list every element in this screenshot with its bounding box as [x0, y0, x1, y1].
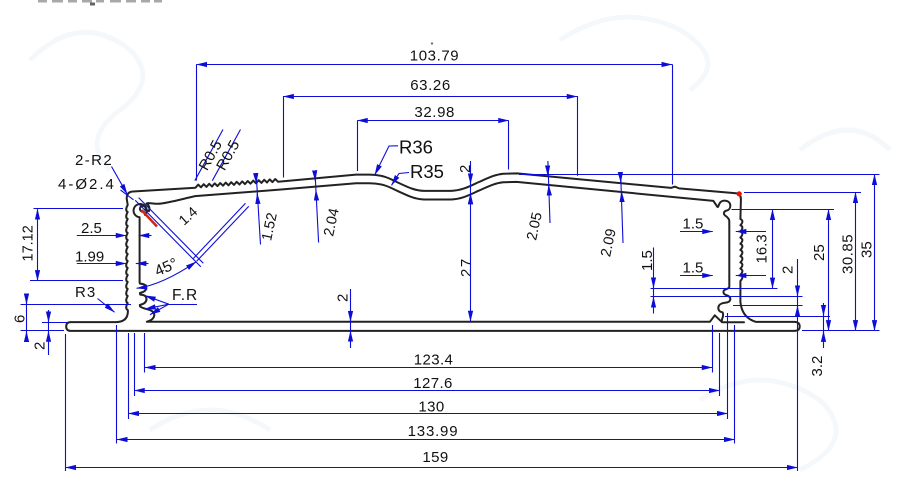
svg-text:R35: R35: [410, 161, 444, 182]
svg-text:32.98: 32.98: [414, 104, 455, 121]
svg-text:2-R2: 2-R2: [75, 152, 113, 169]
svg-text:2: 2: [457, 165, 474, 173]
svg-text:123.4: 123.4: [414, 352, 454, 369]
svg-text:35: 35: [859, 241, 876, 258]
svg-text:63.26: 63.26: [410, 77, 451, 94]
svg-text:4-Ø2.4: 4-Ø2.4: [58, 176, 116, 193]
svg-text:127.6: 127.6: [413, 375, 453, 392]
svg-text:1.5: 1.5: [683, 216, 704, 233]
svg-text:2: 2: [335, 294, 352, 302]
svg-text:130: 130: [418, 398, 444, 415]
svg-text:17.12: 17.12: [21, 225, 37, 261]
svg-text:3.2: 3.2: [809, 356, 826, 377]
svg-text:27: 27: [458, 257, 475, 277]
svg-text:30.85: 30.85: [840, 234, 857, 274]
svg-text:2: 2: [32, 342, 49, 350]
svg-text:F.R: F.R: [172, 287, 198, 304]
svg-text:25: 25: [811, 244, 828, 261]
svg-text:2.5: 2.5: [81, 220, 102, 237]
svg-text:2: 2: [780, 266, 797, 274]
svg-text:R36: R36: [399, 137, 433, 158]
svg-text:1.5: 1.5: [683, 260, 704, 277]
svg-text:16.3: 16.3: [754, 234, 771, 263]
svg-text:159: 159: [422, 449, 448, 466]
svg-text:103.79: 103.79: [410, 48, 459, 65]
svg-text:R3: R3: [75, 284, 96, 301]
svg-text:133.99: 133.99: [408, 423, 459, 440]
